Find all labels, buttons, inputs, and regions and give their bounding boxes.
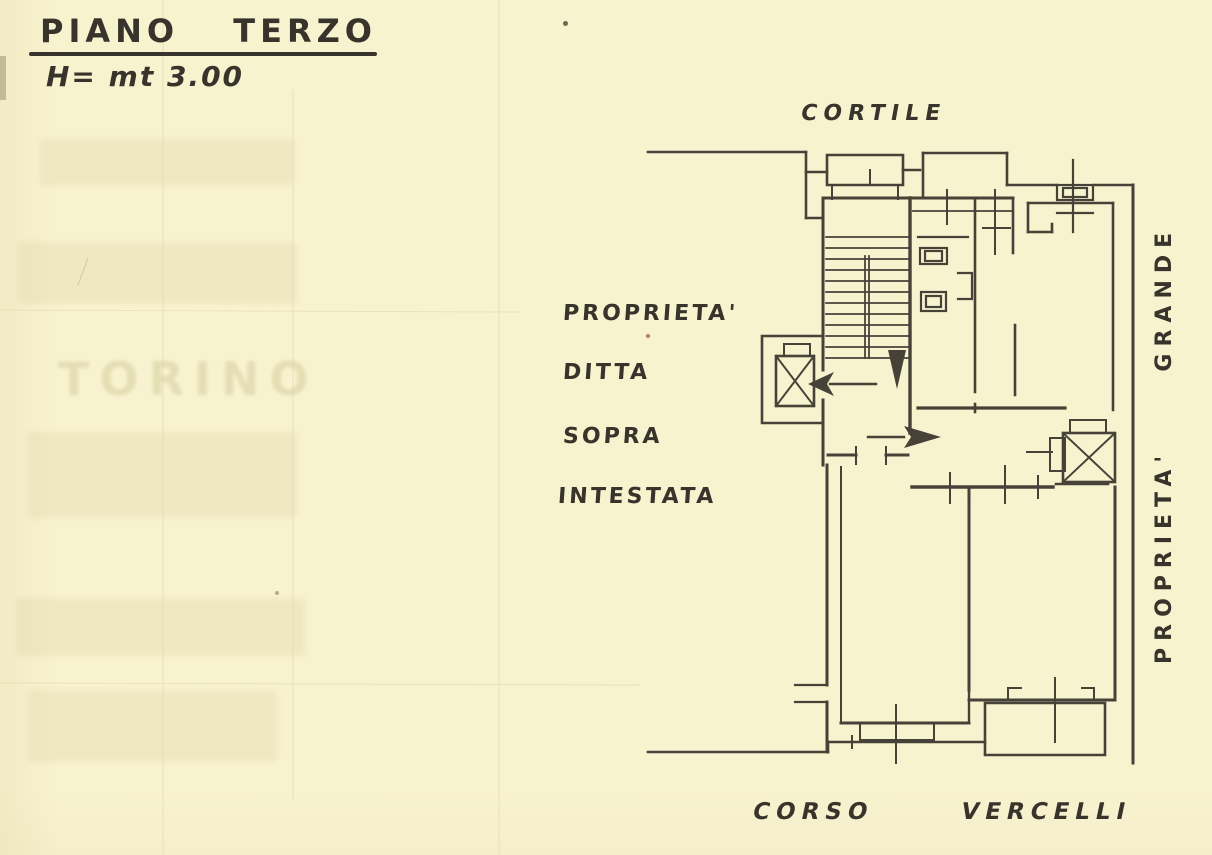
- label-ditta: DITTA: [562, 360, 651, 385]
- balcony-top: [827, 155, 903, 199]
- label-intestata: INTESTATA: [557, 484, 717, 509]
- left-wing-room: [795, 465, 969, 763]
- floor-height-note: H= mt 3.00: [46, 60, 244, 93]
- page-title: PIANO TERZO: [40, 12, 377, 50]
- label-corso-vercelli: CORSO VERCELLI: [750, 799, 1133, 825]
- bottom-right-room: [969, 487, 1115, 755]
- landing: [868, 426, 1053, 503]
- outer-walls: [648, 152, 1133, 763]
- title-underline: [29, 52, 377, 56]
- label-cortile: CORTILE: [799, 101, 948, 126]
- stair-treads: [826, 237, 908, 358]
- elevator-shaft-left: [762, 336, 876, 423]
- label-sopra: SOPRA: [562, 424, 663, 449]
- stair-direction-arrow-down: [888, 350, 906, 389]
- label-proprieta: PROPRIETA': [562, 301, 739, 326]
- chimney-symbol: [1057, 160, 1093, 232]
- elevator-shaft-right: [1027, 420, 1115, 484]
- label-proprieta-grande: PROPRIETA' GRANDE: [1152, 262, 1177, 664]
- stairs: [823, 198, 910, 465]
- window-bay: [852, 705, 934, 763]
- balcony-bottom-right: [985, 703, 1105, 755]
- scanned-floor-plan-page: TORINO: [0, 0, 1212, 855]
- bathroom: [918, 198, 1015, 412]
- door-symbol: [958, 273, 972, 299]
